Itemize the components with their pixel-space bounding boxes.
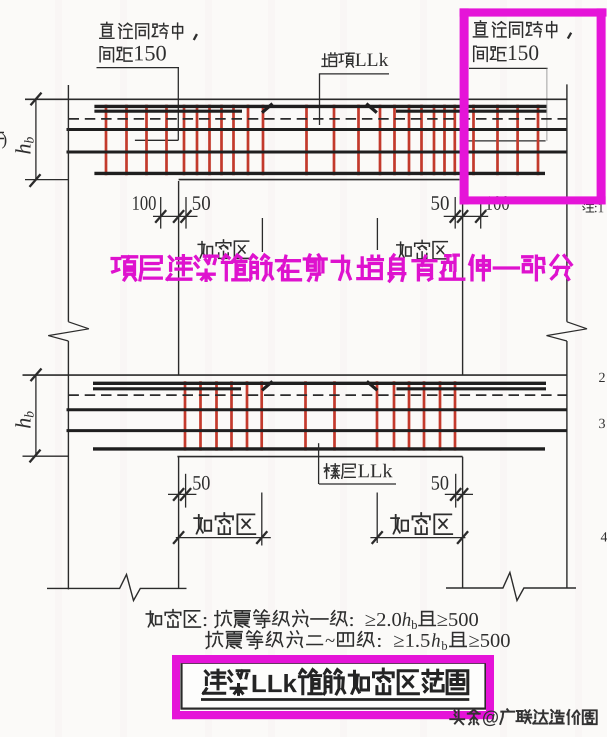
svg-text:50: 50 [192,473,210,495]
svg-text:LLk: LLk [251,670,297,698]
svg-text:50: 50 [431,473,449,495]
svg-text:b: b [411,618,417,632]
svg-text:50: 50 [192,193,211,215]
svg-text:h: h [431,631,441,652]
svg-text:100: 100 [132,193,157,215]
svg-text:≥500: ≥500 [468,631,510,652]
svg-text:): ) [1,130,7,149]
svg-text:≥2.0: ≥2.0 [365,610,402,631]
svg-text::: : [376,631,382,652]
svg-text:LLk: LLk [358,461,393,482]
svg-text:b: b [441,639,447,653]
svg-text:LLk: LLk [355,50,389,71]
svg-text:150: 150 [507,40,539,65]
svg-text:50: 50 [430,193,449,215]
svg-text:150: 150 [133,40,167,65]
svg-text:≥500: ≥500 [437,610,479,631]
svg-text::: : [348,610,354,631]
svg-text:h: h [402,610,412,631]
svg-text:≥1.5: ≥1.5 [393,631,430,652]
svg-text:@: @ [482,707,499,727]
svg-text:3: 3 [598,417,605,432]
svg-text::: : [202,610,208,631]
svg-text:~: ~ [325,631,335,652]
svg-text:4: 4 [600,531,607,546]
svg-text:2: 2 [598,371,605,386]
